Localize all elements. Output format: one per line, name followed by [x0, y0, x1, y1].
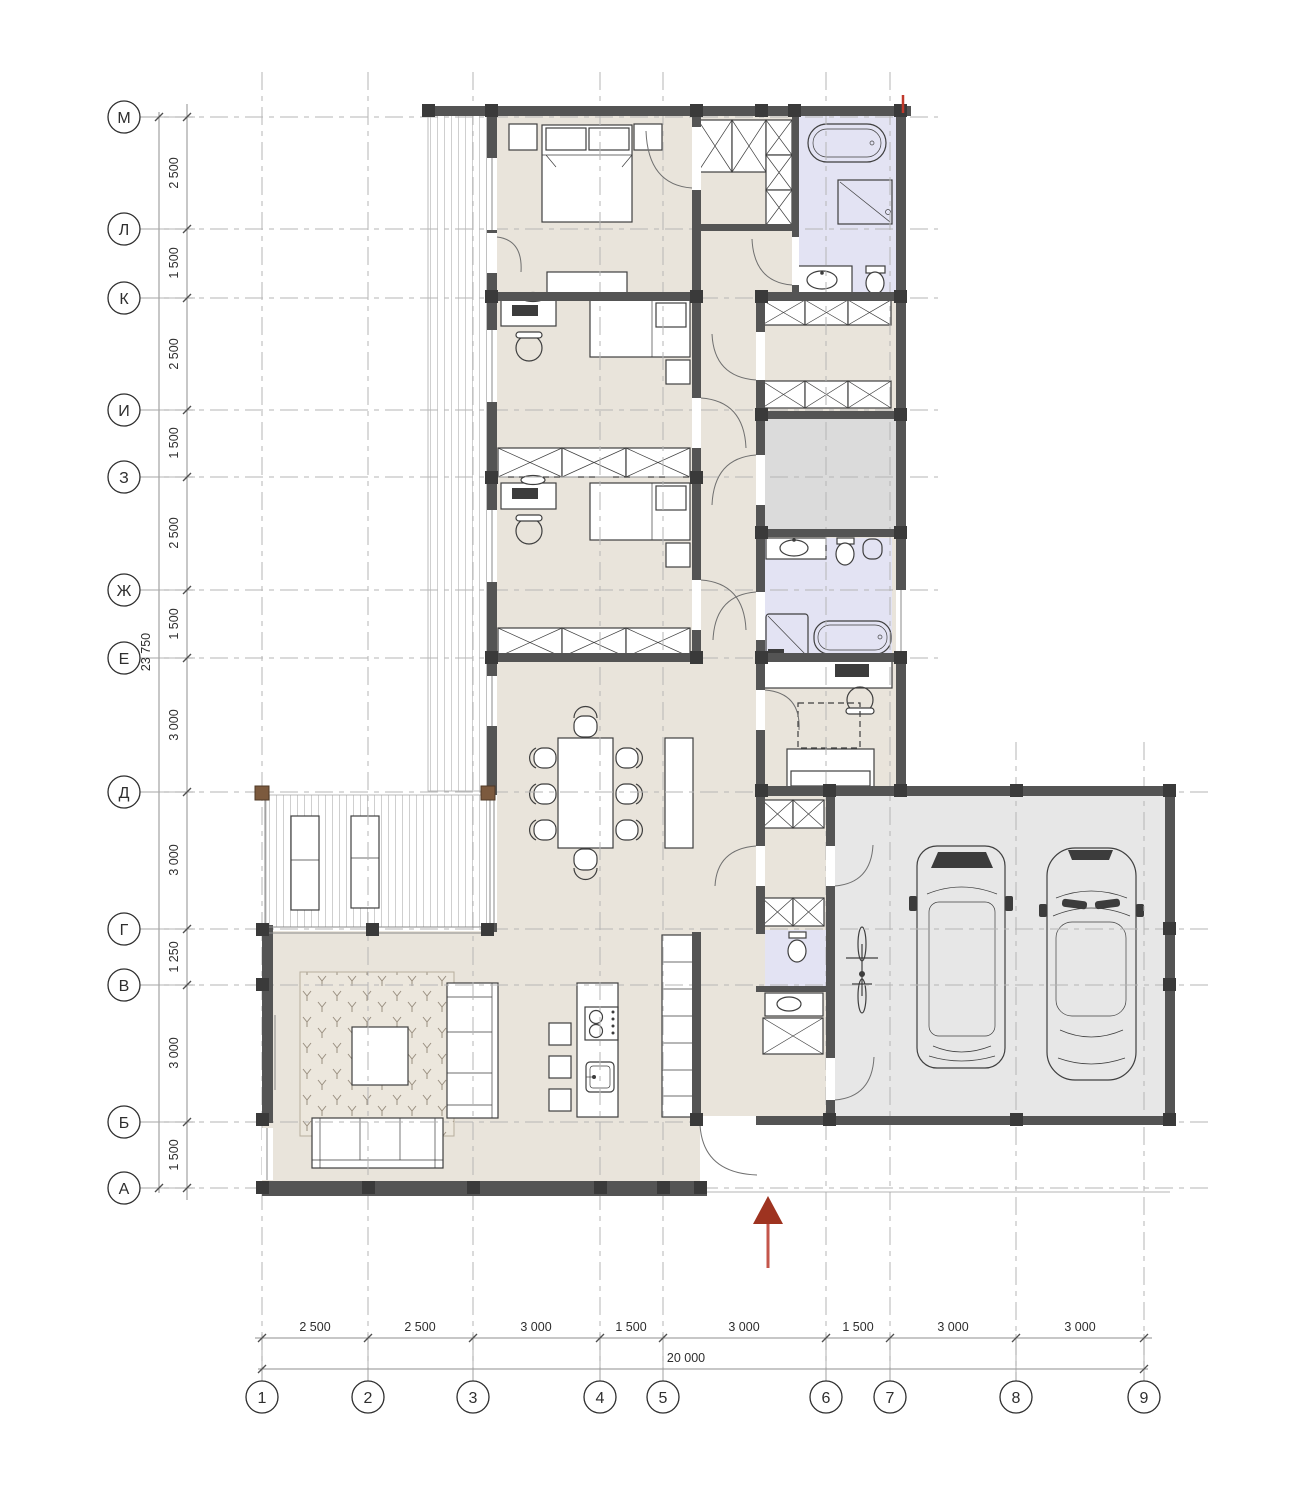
svg-text:В: В — [119, 978, 130, 995]
svg-text:К: К — [119, 291, 129, 308]
coffee-table — [352, 1027, 408, 1085]
sideboard — [665, 738, 693, 848]
svg-text:И: И — [118, 403, 130, 420]
row-dim-label: 1 500 — [167, 247, 181, 278]
row-axis-marker: А — [108, 1172, 140, 1204]
dresser — [547, 272, 627, 295]
col-dim-label: 2 500 — [299, 1320, 330, 1334]
col-axis-marker: 5 — [647, 1381, 679, 1413]
row-axis-marker: З — [108, 461, 140, 493]
laptop — [512, 305, 538, 316]
svg-text:Д: Д — [119, 785, 130, 802]
side-deck — [428, 114, 487, 791]
row-dim-label: 1 500 — [167, 1139, 181, 1170]
washbasin-counter — [765, 993, 823, 1016]
row-axis-marker: Е — [108, 642, 140, 674]
svg-text:9: 9 — [1140, 1390, 1149, 1407]
col-axis-marker: 7 — [874, 1381, 906, 1413]
svg-text:Л: Л — [119, 222, 130, 239]
nightstand — [509, 124, 537, 150]
laptop — [512, 488, 538, 499]
row-dim-label: 3 000 — [167, 844, 181, 875]
storage-room-floor — [765, 419, 900, 529]
stool — [549, 1089, 571, 1111]
pillow — [546, 128, 586, 150]
row-dim-label: 1 500 — [167, 427, 181, 458]
col-axis-marker: 2 — [352, 1381, 384, 1413]
row-dim-label: 1 250 — [167, 941, 181, 972]
dining-table — [558, 738, 613, 848]
svg-text:6: 6 — [822, 1390, 831, 1407]
entrance-arrow — [753, 1196, 783, 1268]
svg-text:2: 2 — [364, 1390, 373, 1407]
col-dim-label: 3 000 — [728, 1320, 759, 1334]
row-dim-label: 3 000 — [167, 709, 181, 740]
col-dim-label: 1 500 — [842, 1320, 873, 1334]
monitor — [835, 664, 869, 677]
row-axis-marker: Л — [108, 213, 140, 245]
svg-text:4: 4 — [596, 1390, 605, 1407]
col-axis-markers: 1 2 3 4 5 6 7 8 9 — [246, 1381, 1160, 1413]
row-axis-marker: И — [108, 394, 140, 426]
svg-text:Ж: Ж — [117, 583, 132, 600]
col-dim-label: 3 000 — [520, 1320, 551, 1334]
svg-text:3: 3 — [469, 1390, 478, 1407]
svg-text:Е: Е — [119, 651, 130, 668]
row-dim-label: 2 500 — [167, 157, 181, 188]
col-axis-marker: 3 — [457, 1381, 489, 1413]
row-axis-marker: В — [108, 969, 140, 1001]
row-dim-label: 3 000 — [167, 1037, 181, 1068]
desk-counter — [762, 660, 892, 688]
col-axis-marker: 4 — [584, 1381, 616, 1413]
sun-lounger — [351, 816, 379, 908]
row-dim-label: 2 500 — [167, 338, 181, 369]
svg-text:Б: Б — [119, 1115, 130, 1132]
row-axis-marker: К — [108, 282, 140, 314]
side-table — [666, 360, 690, 384]
row-total-label: 23 750 — [139, 633, 153, 671]
toilet — [789, 932, 806, 938]
floor-plan-sheet: 2 500 1 500 2 500 1 500 2 500 1 500 3 00… — [0, 0, 1316, 1512]
svg-text:1: 1 — [258, 1390, 267, 1407]
row-axis-marker: Ж — [108, 574, 140, 606]
svg-text:М: М — [117, 110, 130, 127]
stool — [549, 1023, 571, 1045]
wardrobe — [498, 628, 690, 657]
pillow — [791, 771, 870, 786]
row-dim-label: 2 500 — [167, 517, 181, 548]
garage-floor — [835, 796, 1165, 1116]
col-axis-marker: 1 — [246, 1381, 278, 1413]
row-axis-marker: Г — [108, 913, 140, 945]
col-dim-label: 3 000 — [1064, 1320, 1095, 1334]
svg-text:З: З — [119, 470, 129, 487]
svg-text:А: А — [119, 1181, 130, 1198]
col-axis-marker: 9 — [1128, 1381, 1160, 1413]
row-axis-markers: М Л К И З Ж Е Д Г В Б А — [108, 101, 140, 1204]
side-table — [666, 543, 690, 567]
row-axis-marker: М — [108, 101, 140, 133]
col-total-label: 20 000 — [667, 1351, 705, 1365]
svg-text:5: 5 — [659, 1390, 668, 1407]
wardrobe — [498, 448, 690, 477]
pillow — [656, 303, 686, 327]
sun-lounger — [291, 816, 319, 910]
kitchen-island — [577, 983, 618, 1117]
svg-text:Г: Г — [120, 922, 129, 939]
col-axis-marker: 6 — [810, 1381, 842, 1413]
sofa — [312, 1118, 443, 1168]
row-axis-marker: Д — [108, 776, 140, 808]
row-dim-label: 1 500 — [167, 608, 181, 639]
col-dim-label: 1 500 — [615, 1320, 646, 1334]
col-dim-label: 2 500 — [404, 1320, 435, 1334]
col-axis-marker: 8 — [1000, 1381, 1032, 1413]
pillow — [589, 128, 629, 150]
svg-text:8: 8 — [1012, 1390, 1021, 1407]
col-dim-label: 3 000 — [937, 1320, 968, 1334]
dimensions-left: 2 500 1 500 2 500 1 500 2 500 1 500 3 00… — [139, 104, 195, 1200]
stool — [549, 1056, 571, 1078]
dimensions-bottom: 2 500 2 500 3 000 1 500 3 000 1 500 3 00… — [255, 1320, 1152, 1381]
floor-plan: 2 500 1 500 2 500 1 500 2 500 1 500 3 00… — [0, 0, 1316, 1512]
row-axis-marker: Б — [108, 1106, 140, 1138]
pillow — [656, 486, 686, 510]
svg-text:7: 7 — [886, 1390, 895, 1407]
